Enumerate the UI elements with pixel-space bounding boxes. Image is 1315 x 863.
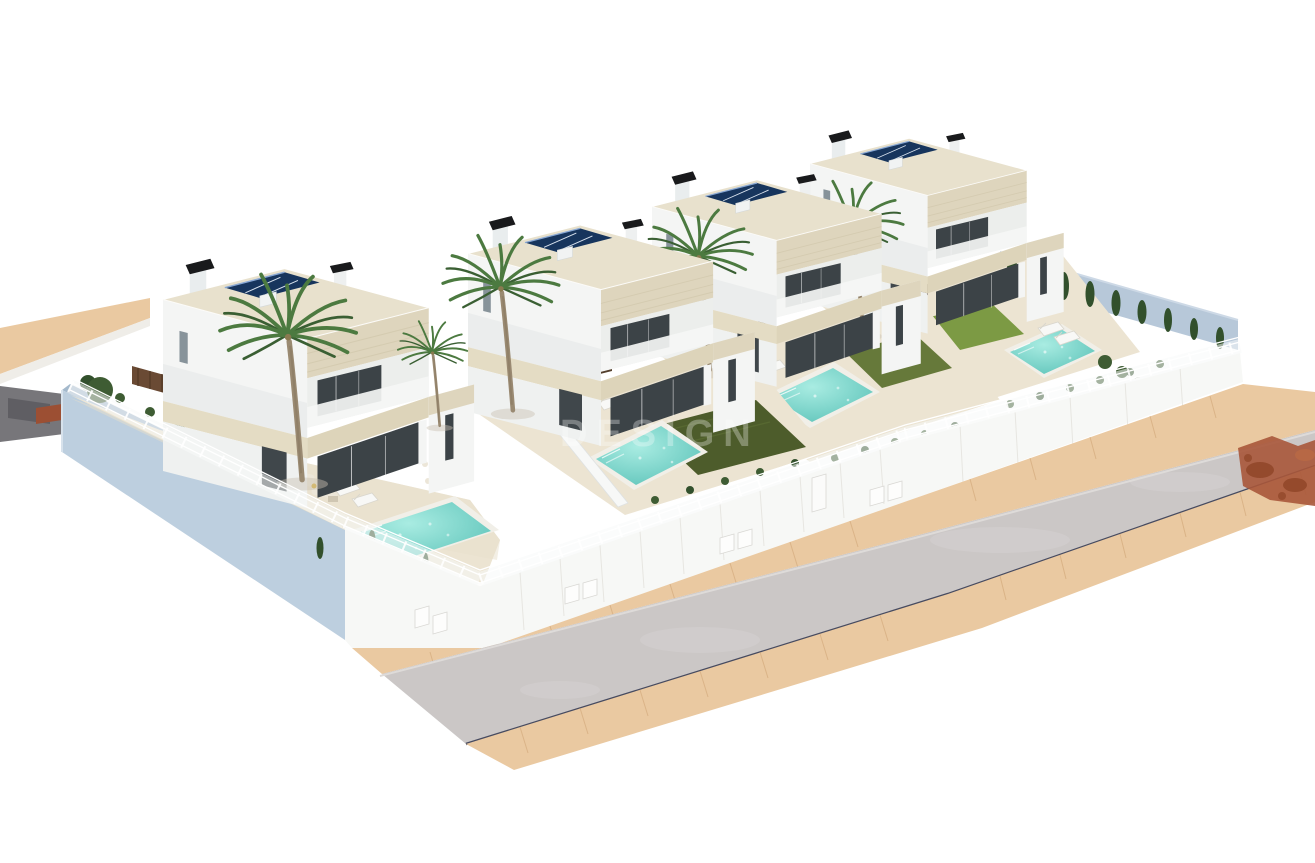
architectural-render: DESIGN	[0, 0, 1315, 863]
watermark: DESIGN	[560, 413, 760, 455]
render-canvas: DESIGN	[0, 0, 1315, 863]
